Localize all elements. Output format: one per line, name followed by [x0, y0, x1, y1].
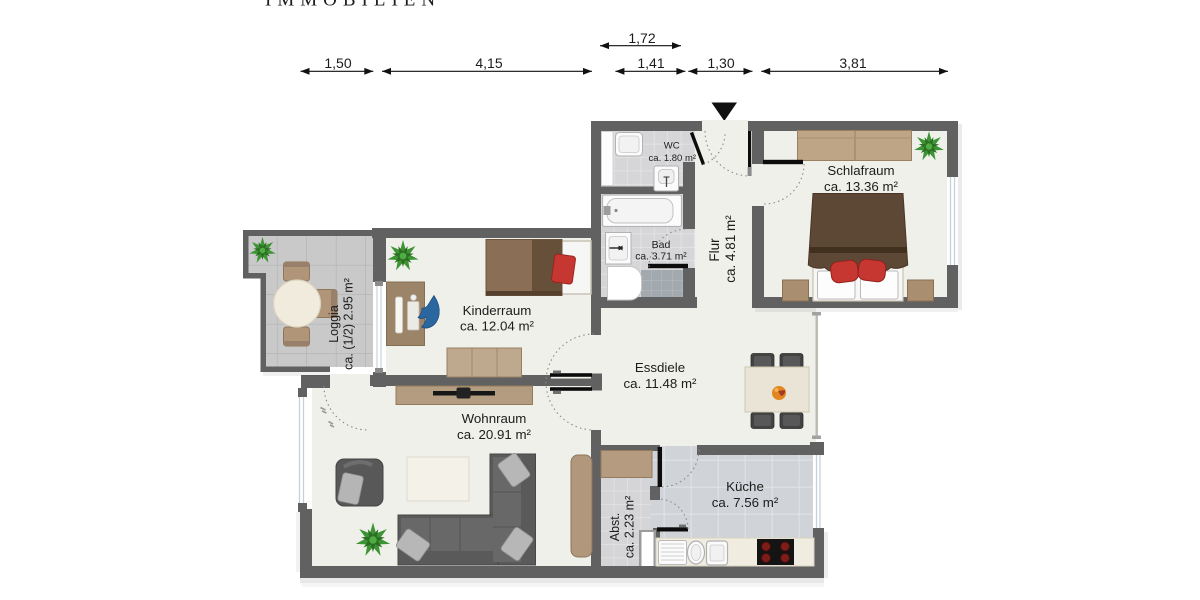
svg-text:3,81: 3,81 [839, 55, 866, 71]
svg-text:ca. 20.91 m²: ca. 20.91 m² [457, 427, 531, 442]
svg-text:ca. 3.71 m²: ca. 3.71 m² [635, 252, 687, 263]
svg-text:4,15: 4,15 [475, 55, 502, 71]
svg-text:Flur: Flur [707, 238, 722, 262]
svg-text:ca. 1.80 m²: ca. 1.80 m² [649, 153, 697, 164]
svg-text:Abst.: Abst. [608, 513, 622, 542]
svg-text:Loggia: Loggia [327, 305, 341, 343]
svg-text:ca. 4.81 m²: ca. 4.81 m² [723, 215, 738, 283]
svg-text:ca. 12.04 m²: ca. 12.04 m² [460, 319, 534, 334]
svg-text:Essdiele: Essdiele [635, 360, 685, 375]
svg-text:ca. 2.23 m²: ca. 2.23 m² [623, 496, 637, 559]
svg-text:ca. 7.56 m²: ca. 7.56 m² [712, 495, 779, 510]
svg-text:ca. (1/2) 2.95 m²: ca. (1/2) 2.95 m² [342, 278, 356, 370]
svg-text:Bad: Bad [652, 239, 671, 251]
svg-text:Wohnraum: Wohnraum [462, 411, 527, 426]
svg-text:Schlafraum: Schlafraum [827, 163, 894, 178]
svg-text:ca. 13.36 m²: ca. 13.36 m² [824, 179, 898, 194]
svg-text:1,30: 1,30 [707, 55, 734, 71]
svg-text:Kinderraum: Kinderraum [463, 303, 532, 318]
svg-text:1,72: 1,72 [628, 30, 655, 46]
svg-text:1,41: 1,41 [637, 55, 664, 71]
svg-text:1,50: 1,50 [324, 55, 351, 71]
svg-text:IMMOBILIEN: IMMOBILIEN [265, 0, 441, 11]
svg-text:Küche: Küche [726, 479, 764, 494]
svg-text:ca. 11.48 m²: ca. 11.48 m² [624, 376, 697, 391]
svg-text:WC: WC [664, 141, 680, 152]
